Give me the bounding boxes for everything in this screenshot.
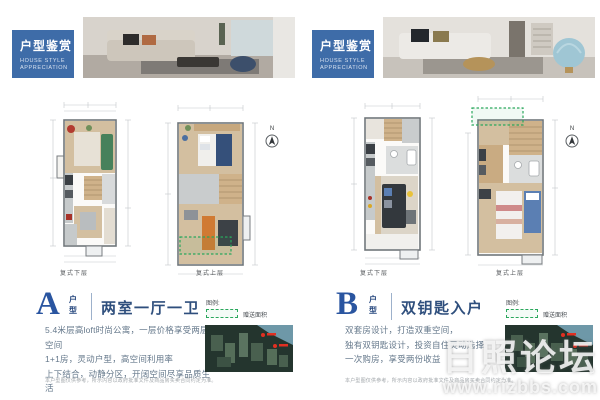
floorplan-b-upper [456, 93, 568, 283]
living-room-illustration [383, 17, 595, 78]
type-letter: B [336, 288, 358, 321]
floorplan-a-upper [158, 98, 268, 283]
description-line: 5.4米层高loft时尚公寓，一层价格享受两层空间 [45, 323, 213, 352]
floorplan-b-lower [344, 98, 444, 278]
title-divider [391, 293, 392, 320]
watermark-site-name: 日照论坛 [442, 339, 598, 377]
legend-item-label: 赠送面积 [543, 310, 567, 319]
site-watermark: 日照论坛 www.rizbbs.com [442, 339, 598, 397]
plan-label-lower: 复式下层 [44, 268, 104, 277]
section-title-en: HOUSE STYLE APPRECIATION [20, 58, 70, 72]
compass-icon [264, 133, 280, 149]
type-suffix: 户 型 [369, 294, 377, 316]
legend-item-label: 赠送面积 [243, 310, 267, 319]
aerial-render-thumbnail [205, 325, 293, 372]
header-photo-living-room [383, 17, 595, 78]
compass-icon [564, 133, 580, 149]
section-title-cn: 户型鉴赏 [320, 37, 370, 54]
living-room-illustration [83, 17, 295, 78]
aerial-illustration [205, 325, 293, 372]
plan-label-upper: 复式上层 [180, 268, 240, 277]
type-letter: A [36, 288, 60, 321]
floorplan-a-lower [44, 98, 144, 278]
gift-area-swatch [206, 309, 238, 318]
section-title-block: 户型鉴赏 HOUSE STYLE APPRECIATION [12, 30, 74, 78]
north-arrow: N [264, 126, 280, 149]
legend-label: 图例: [206, 298, 220, 307]
description-line: 双套房设计，打造双重空间， [345, 323, 513, 338]
plan-label-upper: 复式上层 [480, 268, 540, 277]
north-arrow: N [564, 126, 580, 149]
gift-area-swatch [506, 309, 538, 318]
section-title-en: HOUSE STYLE APPRECIATION [320, 58, 370, 72]
north-label: N [264, 126, 280, 133]
section-title-block: 户型鉴赏 HOUSE STYLE APPRECIATION [312, 30, 374, 78]
header-photo-living-room [83, 17, 295, 78]
panel-a: 户型鉴赏 HOUSE STYLE APPRECIATION [0, 0, 300, 400]
watermark-url: www.rizbbs.com [442, 377, 598, 397]
type-headline: 双钥匙入户 [401, 297, 484, 318]
disclaimer-text: 本户型图仅供参考，所示内容以政府批准文件及商品房买卖合同约定为准。 [45, 377, 255, 384]
description-line: 1+1房，灵动户型，高空间利用率 [45, 352, 213, 367]
legend-label: 图例: [506, 298, 520, 307]
north-label: N [564, 126, 580, 133]
title-divider [91, 293, 92, 320]
plan-label-lower: 复式下层 [344, 268, 404, 277]
type-description: 5.4米层高loft时尚公寓，一层价格享受两层空间 1+1房，灵动户型，高空间利… [45, 323, 213, 396]
type-headline: 两室一厅一卫 [101, 297, 200, 318]
brochure-canvas: 户型鉴赏 HOUSE STYLE APPRECIATION [0, 0, 600, 400]
section-title-cn: 户型鉴赏 [20, 37, 70, 54]
type-suffix: 户 型 [69, 294, 77, 316]
